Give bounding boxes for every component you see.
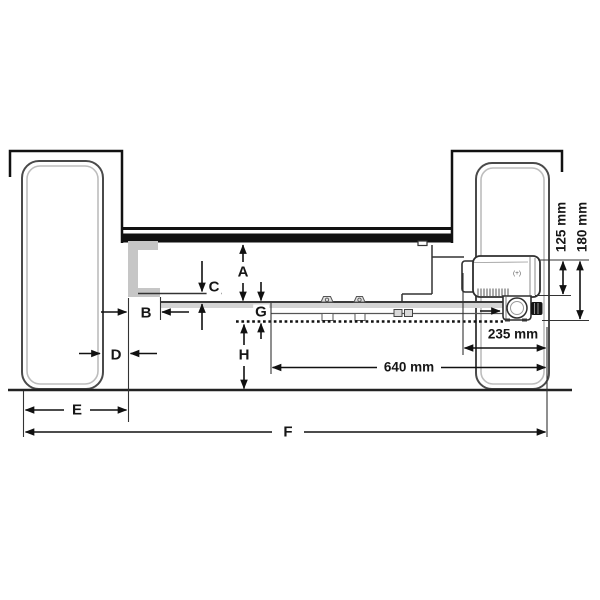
dim-label-g: G	[253, 305, 269, 320]
dim-label-c: C	[207, 280, 222, 295]
mounting-bracket	[128, 241, 160, 297]
measurement-640mm: 640 mm	[382, 360, 436, 374]
tail-lift-dimension-diagram: A B C D E F G H 640 mm 235 mm 125 mm 180…	[0, 0, 600, 600]
measurement-125mm: 125 mm	[554, 200, 568, 254]
measurement-180mm: 180 mm	[575, 200, 589, 254]
measurement-235mm: 235 mm	[486, 327, 540, 341]
lift-platform	[160, 297, 505, 321]
dim-label-d: D	[109, 348, 124, 363]
diagram-canvas	[0, 0, 600, 600]
motor-marking-label: (+)	[513, 271, 521, 278]
pump-housing	[503, 296, 531, 322]
floor-band	[121, 227, 453, 243]
dim-label-e: E	[70, 403, 84, 418]
lift-motor-unit	[462, 256, 540, 297]
dim-label-b: B	[139, 306, 154, 321]
connector-plug	[531, 302, 543, 315]
left-wheel	[22, 161, 103, 389]
dim-label-f: F	[281, 425, 294, 440]
lift-frame	[402, 241, 464, 302]
dim-label-h: H	[237, 348, 252, 363]
dim-label-a: A	[236, 265, 251, 280]
